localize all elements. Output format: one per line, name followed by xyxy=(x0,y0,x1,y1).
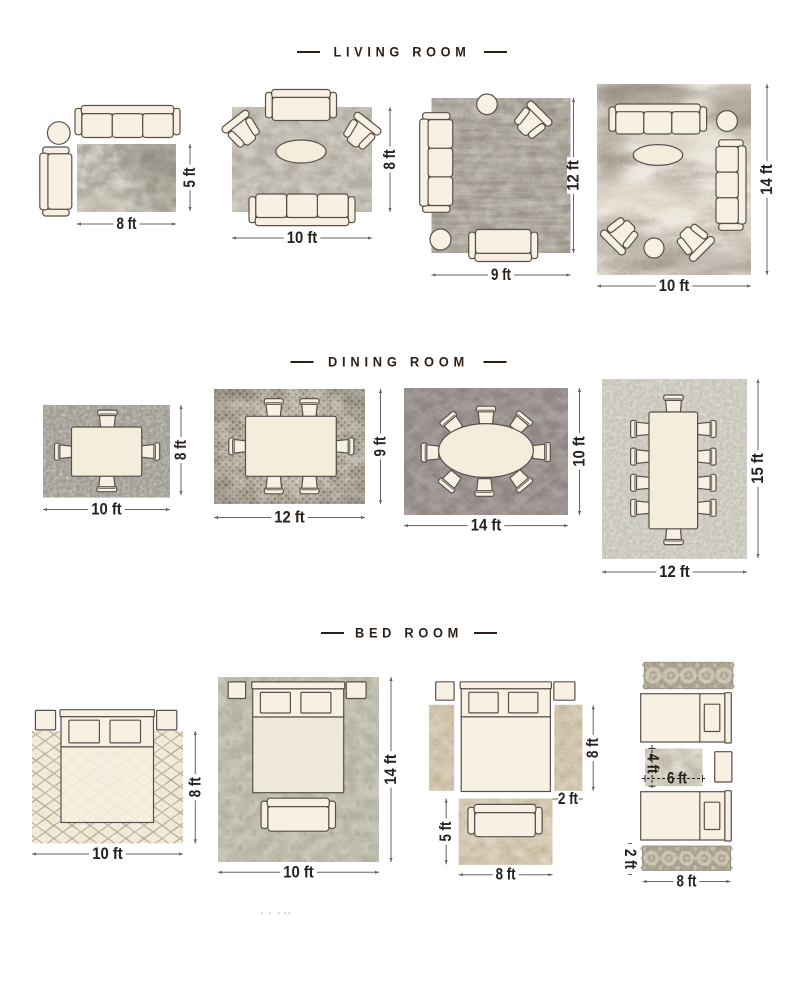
svg-text:10 ft: 10 ft xyxy=(91,501,122,519)
svg-text:12 ft: 12 ft xyxy=(659,563,690,581)
svg-text:8 ft: 8 ft xyxy=(677,873,697,891)
svg-text:9 ft: 9 ft xyxy=(372,436,390,456)
svg-text:10 ft: 10 ft xyxy=(283,863,314,881)
svg-text:8 ft: 8 ft xyxy=(172,440,190,460)
svg-text:10 ft: 10 ft xyxy=(571,436,589,467)
svg-text:8 ft: 8 ft xyxy=(381,149,399,169)
svg-text:8 ft: 8 ft xyxy=(584,738,602,758)
svg-text:BED ROOM: BED ROOM xyxy=(355,626,463,641)
svg-text:2 ft: 2 ft xyxy=(621,849,639,869)
svg-text:10 ft: 10 ft xyxy=(659,277,690,295)
svg-text:8 ft: 8 ft xyxy=(186,777,204,797)
svg-text:5 ft: 5 ft xyxy=(181,167,199,187)
svg-text:14 ft: 14 ft xyxy=(471,517,502,535)
svg-text:15 ft: 15 ft xyxy=(749,453,767,484)
svg-text:LIVING ROOM: LIVING ROOM xyxy=(334,45,471,60)
svg-text:8 ft: 8 ft xyxy=(117,215,137,233)
svg-text:DINING ROOM: DINING ROOM xyxy=(328,355,469,370)
svg-text:6 ft: 6 ft xyxy=(667,770,687,788)
svg-text:14 ft: 14 ft xyxy=(382,754,400,785)
svg-text:14 ft: 14 ft xyxy=(758,164,776,195)
svg-text:5 ft: 5 ft xyxy=(437,821,455,841)
svg-text:10 ft: 10 ft xyxy=(92,845,123,863)
svg-text:8 ft: 8 ft xyxy=(496,866,516,884)
svg-text:4 ft: 4 ft xyxy=(644,754,662,774)
svg-text:10 ft: 10 ft xyxy=(287,229,318,247)
svg-text:12 ft: 12 ft xyxy=(565,160,583,191)
svg-text:9 ft: 9 ft xyxy=(491,266,511,284)
svg-text:2 ft: 2 ft xyxy=(558,790,578,808)
svg-text:12 ft: 12 ft xyxy=(274,509,305,527)
